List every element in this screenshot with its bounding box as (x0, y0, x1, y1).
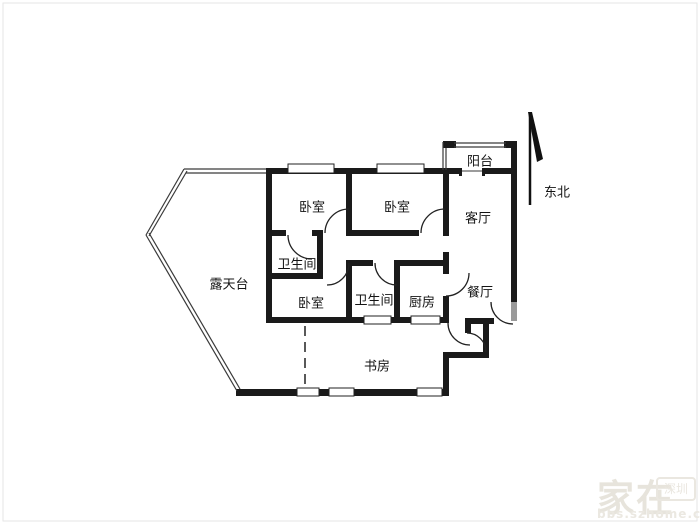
door-bedroom1 (325, 209, 349, 233)
window-bedroom2 (377, 164, 424, 173)
window-bedroom1 (288, 164, 334, 173)
room-label-bedroom-2: 卧室 (384, 197, 410, 216)
room-label-bathroom-1: 卫生间 (277, 254, 316, 273)
floorplan-drawing (0, 0, 700, 525)
room-label-bedroom-3: 卧室 (298, 293, 324, 312)
window-bathroom2 (364, 316, 391, 324)
door-bedroom2 (421, 209, 445, 233)
window-study-a (297, 388, 319, 396)
watermark-url: bbs.szhome.com (597, 507, 700, 521)
north-arrow-icon (528, 112, 543, 205)
door-bedroom3 (327, 263, 349, 285)
compass-label-northeast: 东北 (544, 182, 570, 201)
door-entry (491, 302, 513, 324)
entry-door-panel (511, 302, 517, 321)
floorplan-canvas: 阳台 卧室 卧室 客厅 卫生间 露天台 卧室 卫生间 厨房 餐厅 书房 东北 家… (0, 0, 700, 525)
room-label-living-room: 客厅 (465, 208, 491, 227)
room-label-balcony: 阳台 (467, 151, 493, 170)
window-kitchen (411, 316, 440, 324)
room-label-dining-room: 餐厅 (467, 282, 493, 301)
watermark-badge: 深圳 (656, 477, 696, 501)
window-study-c (417, 388, 442, 396)
room-label-kitchen: 厨房 (409, 292, 435, 311)
door-kitchen (446, 273, 469, 296)
room-label-study: 书房 (364, 356, 390, 375)
room-label-terrace: 露天台 (209, 274, 248, 293)
door-bathroom2 (375, 263, 397, 285)
window-study-b (329, 388, 354, 396)
room-label-bedroom-1: 卧室 (299, 197, 325, 216)
room-label-bathroom-2: 卫生间 (354, 290, 393, 309)
